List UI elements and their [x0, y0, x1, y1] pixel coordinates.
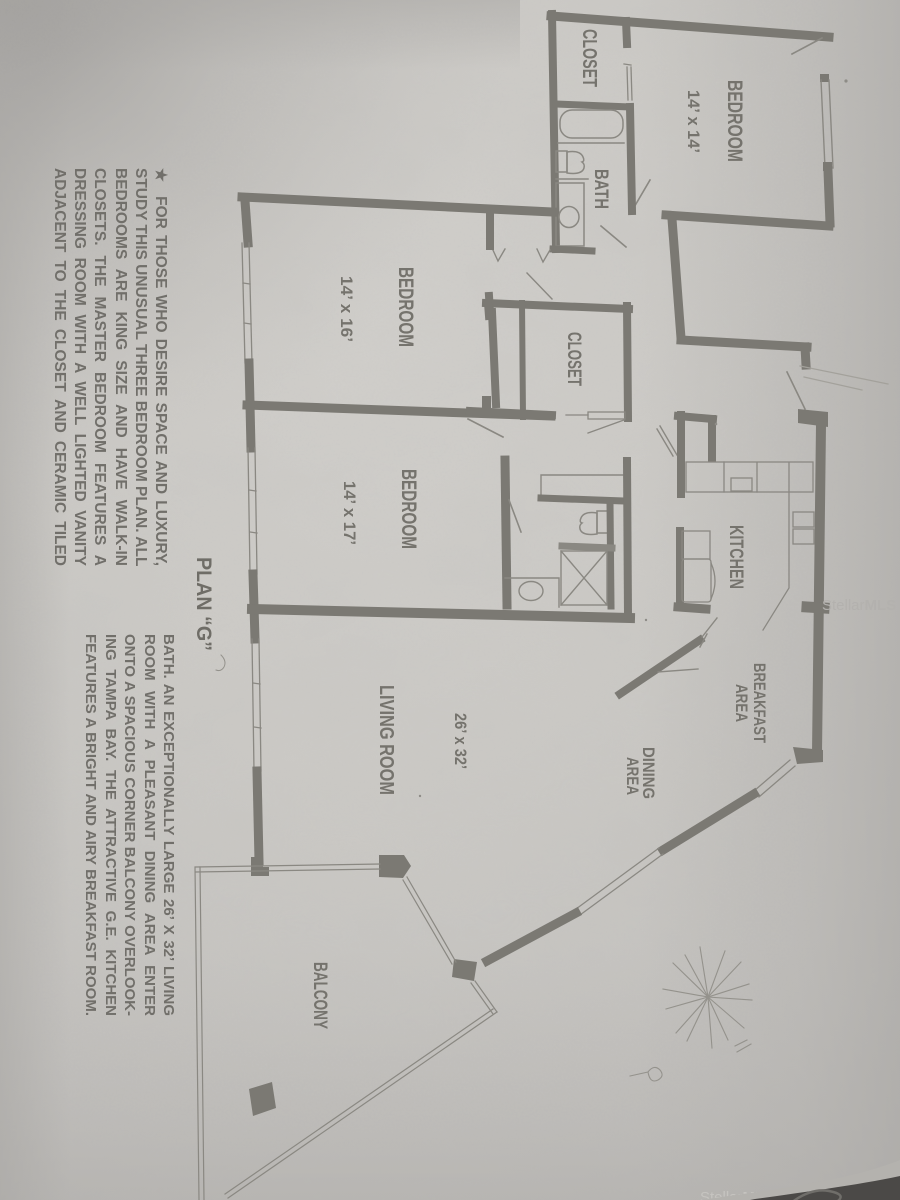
svg-text:14’ x 16’: 14’ x 16’: [337, 276, 356, 342]
svg-text:KITCHEN: KITCHEN: [725, 525, 746, 589]
svg-text:14’ x 14’: 14’ x 14’: [684, 90, 703, 153]
svg-text:BALCONY: BALCONY: [309, 962, 330, 1029]
svg-text:AREA: AREA: [732, 684, 751, 722]
svg-text:BEDROOM: BEDROOM: [723, 80, 746, 162]
svg-text:PLAN “G”: PLAN “G”: [192, 557, 215, 651]
svg-text:CLOSET: CLOSET: [578, 29, 600, 87]
svg-text:26’ x 32’: 26’ x 32’: [451, 713, 470, 769]
svg-text:BEDROOM: BEDROOM: [394, 267, 417, 347]
svg-text:LIVING ROOM: LIVING ROOM: [375, 685, 397, 795]
svg-text:BREAKFAST: BREAKFAST: [750, 663, 769, 743]
svg-text:CLOSET: CLOSET: [563, 332, 584, 386]
svg-text:StellarMLS: StellarMLS: [822, 597, 896, 614]
svg-text:14’ x 17’: 14’ x 17’: [340, 481, 359, 545]
svg-text:AREA: AREA: [623, 757, 642, 795]
svg-text:BATH: BATH: [590, 169, 611, 209]
svg-text:BEDROOM: BEDROOM: [397, 469, 420, 549]
